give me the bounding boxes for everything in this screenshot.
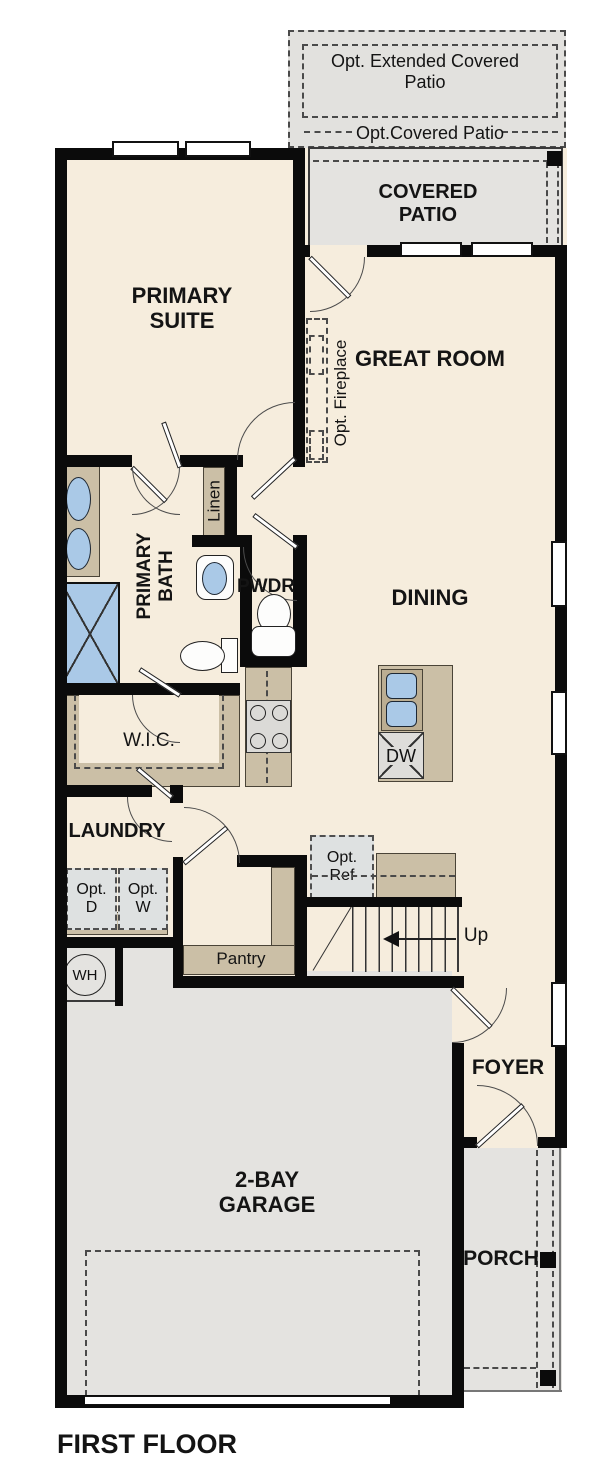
opt-extended-patio-label: Opt. Extended Covered Patio bbox=[320, 50, 530, 94]
opt-fireplace-inner-bottom bbox=[309, 430, 324, 460]
burner-1 bbox=[250, 705, 266, 721]
garage-label: 2-BAY GARAGE bbox=[197, 1164, 337, 1220]
dishwasher-label: DW bbox=[386, 747, 416, 765]
water-heater: WH bbox=[64, 954, 106, 996]
wall-foyer-front-b bbox=[538, 1137, 567, 1148]
garage-overhead-door bbox=[85, 1396, 390, 1405]
wall-wic-bottom bbox=[55, 785, 152, 797]
linen-label: Linen bbox=[206, 464, 224, 539]
wall-exterior-left bbox=[55, 148, 67, 1408]
burner-2 bbox=[272, 705, 288, 721]
pwdr-label: PWDR bbox=[233, 577, 299, 597]
greatroom-window-2 bbox=[471, 242, 533, 257]
shower bbox=[60, 582, 120, 686]
dishwasher: DW bbox=[378, 732, 424, 779]
wall-foyer-front-a bbox=[452, 1137, 477, 1148]
patio-dashed-col-2 bbox=[557, 162, 559, 243]
suite-window-2 bbox=[185, 141, 251, 157]
island-sink-basin-2 bbox=[386, 701, 417, 727]
stair-arrow-head bbox=[383, 931, 399, 947]
opt-fireplace-inner-top bbox=[309, 335, 324, 375]
wic-label: W.I.C. bbox=[119, 731, 179, 751]
covered-patio-label: COVERED PATIO bbox=[358, 181, 498, 227]
pwdr-sink-basin bbox=[202, 562, 227, 595]
patio-door-opening bbox=[310, 245, 367, 257]
wall-suite-top bbox=[55, 148, 305, 160]
porch-label: PORCH bbox=[459, 1247, 543, 1271]
opt-ref-box: Opt. Ref bbox=[310, 835, 374, 899]
opt-washer-box: Opt. W bbox=[118, 868, 168, 930]
opt-dryer-label: Opt. D bbox=[73, 881, 111, 917]
foyer-label: FOYER bbox=[466, 1056, 550, 1080]
vanity-sink-1 bbox=[66, 477, 91, 521]
floor-plan: DW Opt. D Opt. W Opt. Ref WH bbox=[0, 0, 614, 1476]
plan-title: FIRST FLOOR bbox=[57, 1427, 317, 1461]
patio-edge-left bbox=[308, 147, 310, 245]
porch-dashed-col-2 bbox=[552, 1150, 554, 1388]
greatroom-window-1 bbox=[400, 242, 462, 257]
garage-door-dashed-area bbox=[85, 1250, 420, 1396]
foyer-window bbox=[551, 982, 567, 1047]
stair-direction-line bbox=[398, 938, 456, 940]
wall-wh-closet-right bbox=[115, 948, 123, 1006]
dining-label: DINING bbox=[370, 586, 490, 610]
ref-counter-dashed bbox=[312, 875, 455, 877]
wall-linen-right bbox=[225, 455, 237, 547]
pwdr-toilet-tank bbox=[251, 626, 296, 657]
vanity-sink-2 bbox=[66, 528, 91, 570]
dining-window-1 bbox=[551, 541, 567, 607]
dining-window-2 bbox=[551, 691, 567, 755]
porch-dashed-line bbox=[464, 1367, 536, 1369]
porch-edge-right bbox=[559, 1148, 561, 1392]
wall-laundry-bottom bbox=[55, 937, 173, 948]
wall-pantry-left bbox=[173, 857, 183, 988]
suite-window-1 bbox=[112, 141, 179, 157]
wall-bath-bottom bbox=[55, 683, 240, 695]
primary-suite-label: PRIMARY SUITE bbox=[102, 282, 262, 334]
bath-toilet-bowl bbox=[180, 641, 225, 671]
porch-edge-bottom bbox=[462, 1390, 562, 1392]
patio-dashed-col-1 bbox=[546, 162, 548, 243]
primary-bath-label: PRIMARY BATH bbox=[134, 521, 178, 631]
opt-ref-label: Opt. Ref bbox=[321, 849, 363, 885]
opt-covered-patio-label: Opt.Covered Patio bbox=[338, 123, 522, 143]
burner-4 bbox=[272, 733, 288, 749]
porch-post-bottom bbox=[540, 1370, 556, 1386]
pantry-label: Pantry bbox=[211, 949, 271, 969]
wall-stairs-top bbox=[305, 897, 462, 907]
great-room-label: GREAT ROOM bbox=[350, 333, 510, 385]
water-heater-label: WH bbox=[73, 968, 98, 983]
wall-suite-bottom-a bbox=[55, 455, 132, 467]
patio-post bbox=[547, 151, 562, 166]
patio-dashed-line bbox=[313, 160, 559, 162]
wall-garage-top bbox=[173, 976, 462, 988]
opt-dryer-box: Opt. D bbox=[66, 868, 117, 930]
laundry-label: LAUNDRY bbox=[62, 820, 172, 842]
burner-3 bbox=[250, 733, 266, 749]
wall-pantry-right bbox=[295, 855, 307, 988]
opt-washer-label: Opt. W bbox=[124, 881, 162, 917]
patio-edge-top bbox=[308, 147, 563, 149]
stairs-up-label: Up bbox=[457, 925, 495, 947]
wh-closet-bottom-line bbox=[67, 1000, 115, 1002]
island-sink-basin-1 bbox=[386, 673, 417, 699]
opt-fireplace-label: Opt. Fireplace bbox=[331, 328, 351, 458]
